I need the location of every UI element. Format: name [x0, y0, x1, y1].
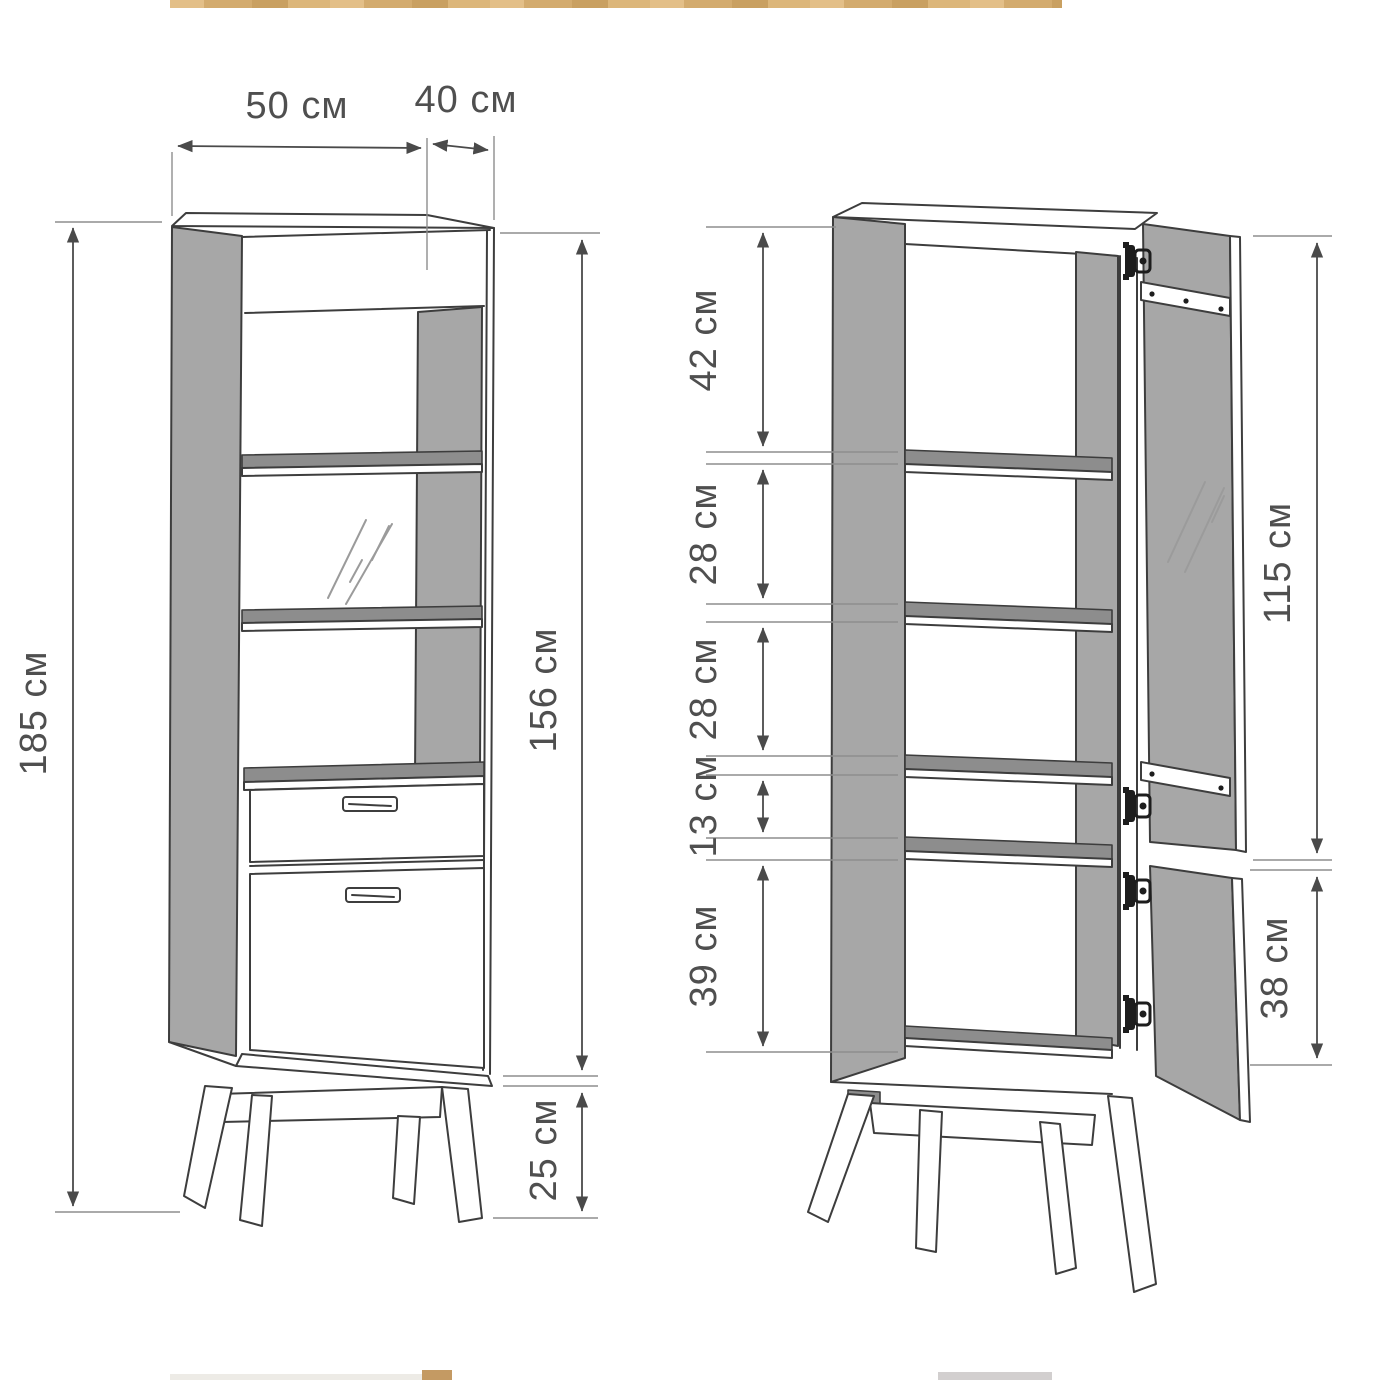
dim-label-total-height: 185 см	[13, 650, 55, 775]
door-handle-icon	[346, 888, 400, 902]
glass-door-open	[1123, 224, 1246, 852]
dim-label-depth: 40 см	[415, 79, 518, 121]
right-side-panel-inner	[415, 307, 482, 778]
dim-label-bottom-door: 38 см	[1254, 917, 1296, 1020]
open-view-cabinet	[808, 203, 1250, 1292]
right-edge-outer	[490, 228, 494, 1074]
dim-label-width: 50 см	[246, 85, 349, 127]
front-left-leg	[184, 1086, 232, 1208]
bottom-door-panel	[1150, 866, 1240, 1120]
back-right-leg	[393, 1116, 420, 1204]
dim-label-section-4: 13 см	[683, 755, 725, 858]
diagram-page: 50 см 40 см 185 см 156 см 25 см	[0, 0, 1380, 1380]
front-view-cabinet	[169, 213, 494, 1226]
dim-line-depth	[433, 144, 488, 150]
dim-label-section-1: 42 см	[683, 289, 725, 392]
open-front-right-leg	[1108, 1096, 1156, 1292]
dim-label-section-3: 28 см	[683, 638, 725, 741]
bottom-door-open	[1123, 866, 1250, 1122]
dim-label-legs: 25 см	[523, 1099, 565, 1202]
dim-label-section-5: 39 см	[683, 905, 725, 1008]
open-right-panel-inner	[1076, 252, 1118, 1046]
top-rail-line	[242, 230, 490, 237]
furniture-dimension-diagram: 50 см 40 см 185 см 156 см 25 см	[0, 0, 1380, 1380]
front-right-leg	[442, 1087, 482, 1222]
drawer-front	[250, 784, 484, 862]
open-left-side-panel	[831, 217, 905, 1082]
dim-label-glass-door: 115 см	[1257, 502, 1299, 624]
open-back-left-leg	[916, 1110, 942, 1252]
cabinet-top-panel	[172, 213, 494, 228]
open-front-left-leg	[808, 1094, 874, 1222]
dim-label-section-2: 28 см	[683, 483, 725, 586]
dim-line-width	[178, 146, 421, 148]
glass-pane-reflections	[328, 520, 392, 604]
drawer-handle-icon	[343, 797, 397, 811]
left-side-panel	[169, 227, 242, 1056]
dim-label-body-height: 156 см	[523, 627, 565, 752]
glass-door-panel	[1143, 224, 1236, 850]
